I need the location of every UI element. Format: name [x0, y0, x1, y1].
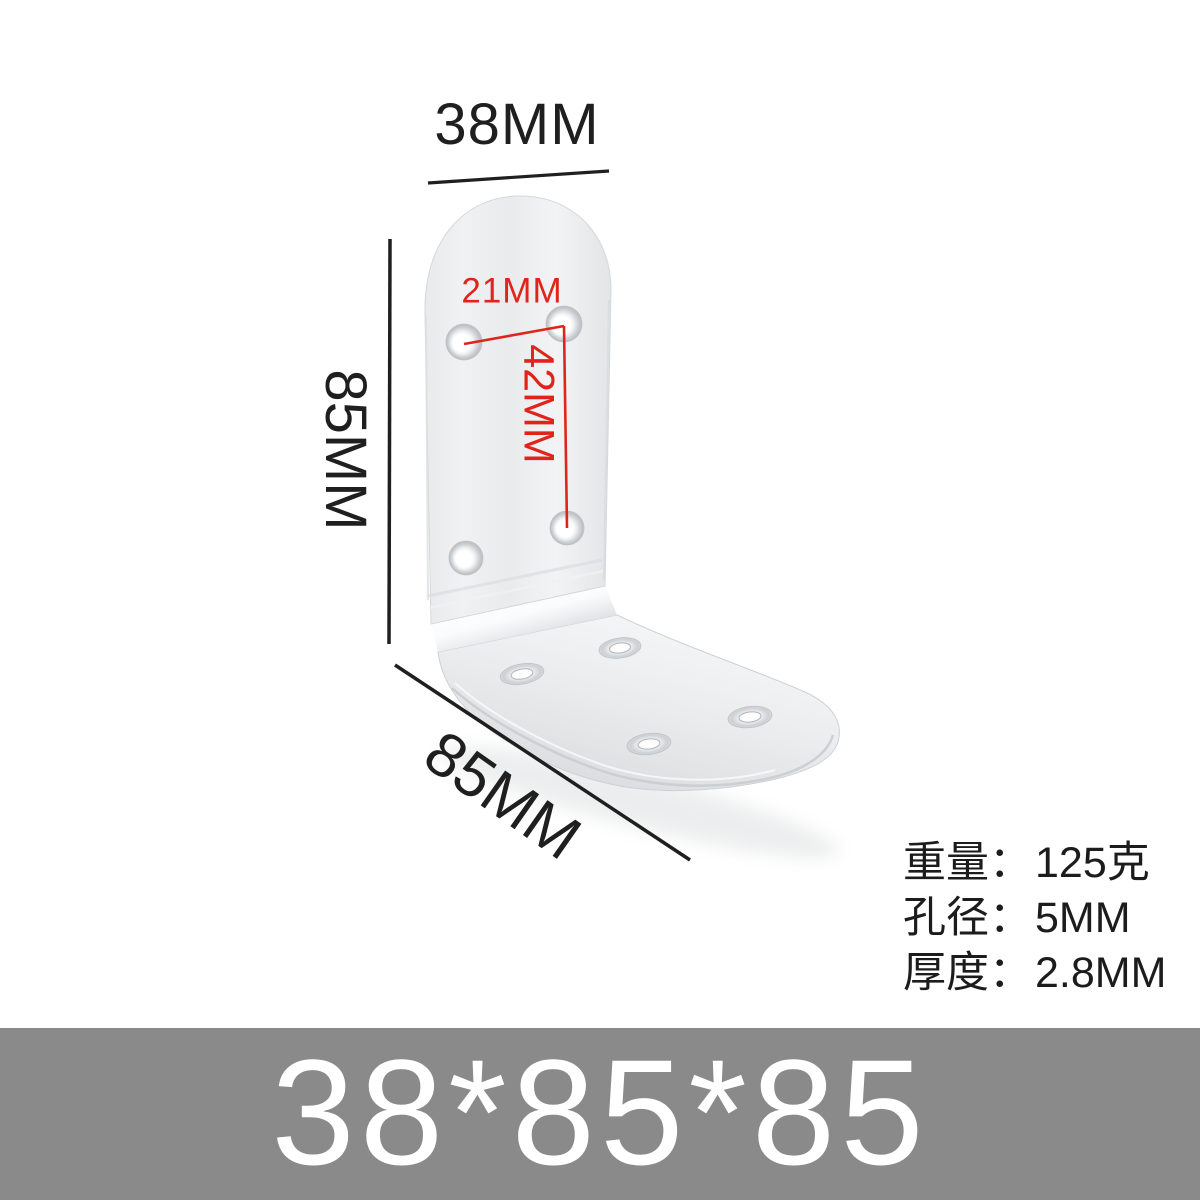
dim-label-hole-pitch-vertical: 42MM	[517, 344, 560, 463]
size-banner-text: 38*85*85	[271, 1037, 928, 1187]
spec-row-hole-diameter: 孔径： 5MM	[903, 891, 1166, 946]
spec-value-weight: 125克	[1035, 836, 1150, 891]
bracket-graphic	[0, 0, 1200, 1200]
dim-label-top-width: 38MM	[434, 96, 599, 154]
plate-hole-bottom-left	[449, 541, 483, 575]
size-banner: 38*85*85	[0, 1028, 1200, 1200]
spec-list: 重量： 125克 孔径： 5MM 厚度： 2.8MM	[903, 836, 1166, 1001]
dim-label-left-height: 85MM	[316, 369, 374, 530]
spec-row-weight: 重量： 125克	[903, 836, 1166, 891]
spec-label-weight: 重量：	[903, 836, 1035, 891]
spec-value-hole-diameter: 5MM	[1035, 891, 1131, 946]
dim-line-left-height	[389, 239, 390, 644]
spec-row-thickness: 厚度： 2.8MM	[903, 946, 1166, 1001]
spec-label-thickness: 厚度：	[903, 946, 1035, 1001]
product-image: 38MM 85MM 85MM 21MM 42MM 重量： 125克 孔径： 5M…	[0, 0, 1200, 1200]
dim-label-hole-pitch-horizontal: 21MM	[461, 274, 562, 309]
dim-line-top-width	[428, 171, 609, 183]
spec-label-hole-diameter: 孔径：	[903, 891, 1035, 946]
spec-value-thickness: 2.8MM	[1035, 946, 1166, 1001]
